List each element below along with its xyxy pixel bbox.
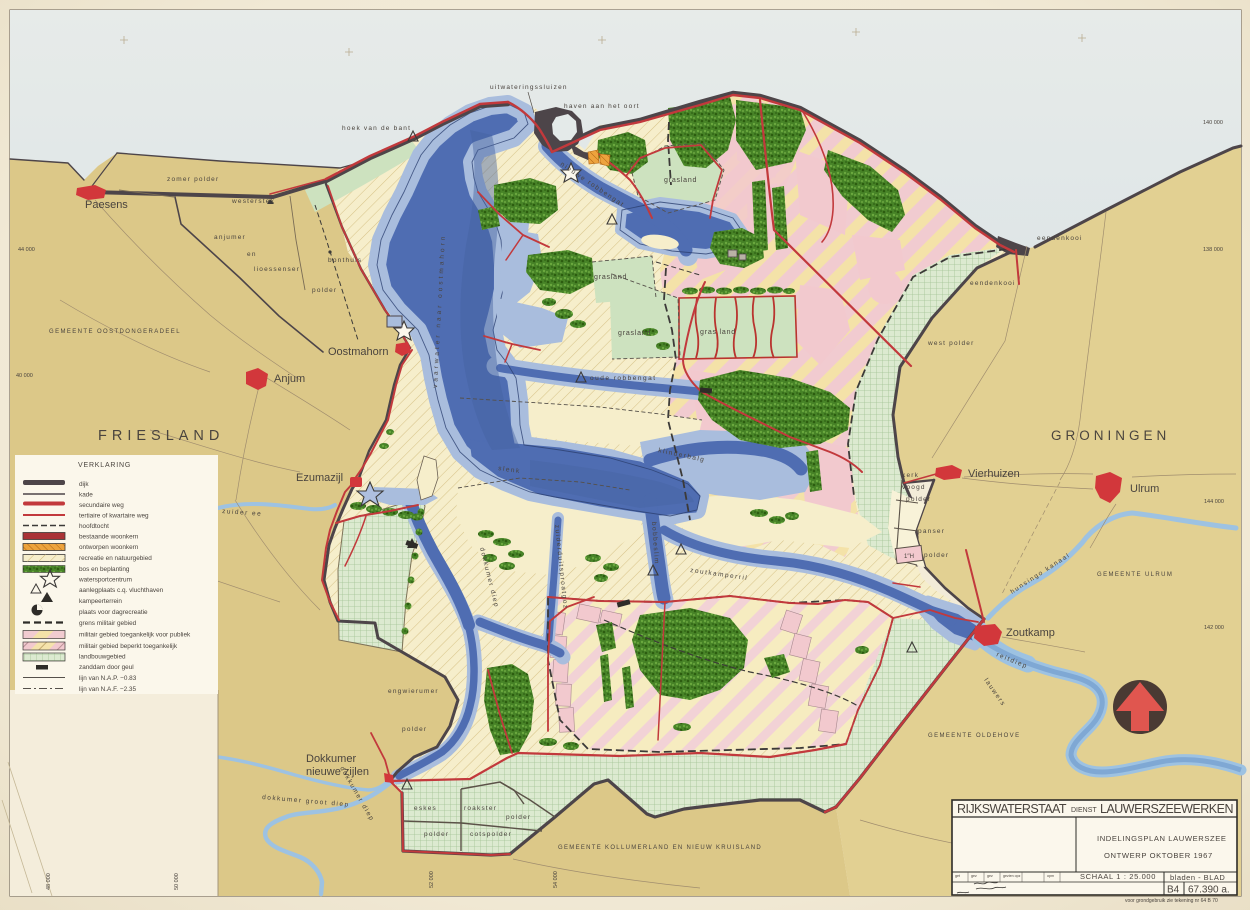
svg-text:panser: panser [918, 528, 945, 535]
svg-text:1′′H: 1′′H [904, 554, 914, 560]
svg-text:kade: kade [79, 492, 93, 499]
svg-text:Oostmahorn: Oostmahorn [328, 346, 389, 358]
svg-text:VERKLARING: VERKLARING [78, 462, 131, 469]
svg-text:uitwateringssluizen: uitwateringssluizen [490, 84, 568, 91]
svg-text:ontworpen woonkern: ontworpen woonkern [79, 544, 139, 551]
svg-text:144 000: 144 000 [1204, 499, 1224, 505]
svg-text:voogd: voogd [902, 484, 926, 491]
svg-text:dijk: dijk [79, 481, 89, 488]
svg-text:grens militair gebied: grens militair gebied [79, 620, 137, 627]
svg-text:40 000: 40 000 [16, 373, 33, 379]
svg-text:west polder: west polder [927, 340, 974, 347]
svg-text:militair gebied toegankelijk v: militair gebied toegankelijk voor publie… [79, 632, 191, 639]
svg-text:lijn van N.A.F. −2.35: lijn van N.A.F. −2.35 [79, 686, 136, 693]
svg-text:opm: opm [1047, 874, 1054, 878]
svg-text:polder: polder [906, 496, 931, 503]
svg-text:48 000: 48 000 [46, 873, 52, 890]
svg-text:bos en beplanting: bos en beplanting [79, 566, 130, 573]
svg-text:secundaire weg: secundaire weg [79, 502, 124, 509]
svg-text:polder: polder [312, 287, 337, 294]
svg-text:GRONINGEN: GRONINGEN [1051, 428, 1170, 443]
svg-text:tertiaire of kwartaire weg: tertiaire of kwartaire weg [79, 513, 149, 520]
svg-text:gez: gez [987, 874, 993, 878]
svg-text:GEMEENTE KOLLUMERLAND EN NI: GEMEENTE KOLLUMERLAND EN NIEUW KRUISLAND [558, 845, 762, 851]
svg-text:oude robbengat: oude robbengat [590, 375, 657, 382]
svg-text:engwierumer: engwierumer [388, 688, 439, 695]
svg-text:landbouwgebied: landbouwgebied [79, 654, 126, 661]
svg-text:roakster: roakster [464, 805, 497, 812]
svg-text:bonthuis: bonthuis [328, 257, 362, 264]
svg-text:GEMEENTE ULRUM: GEMEENTE ULRUM [1097, 572, 1173, 578]
svg-text:zanddam door geul: zanddam door geul [79, 664, 134, 671]
svg-text:ONTWERP OKTOBER 1967: ONTWERP OKTOBER 1967 [1104, 851, 1213, 860]
svg-text:aanlegplaats c.q. vluchthaven: aanlegplaats c.q. vluchthaven [79, 587, 164, 594]
svg-text:B4: B4 [1167, 885, 1180, 896]
svg-text:138 000: 138 000 [1203, 247, 1223, 253]
svg-text:get: get [955, 874, 960, 878]
svg-text:recreatie en natuurgebied: recreatie en natuurgebied [79, 555, 152, 562]
svg-text:grasland: grasland [594, 274, 627, 281]
svg-text:LAUWERSZEEWERKEN: LAUWERSZEEWERKEN [1100, 802, 1234, 816]
svg-text:44 000: 44 000 [18, 247, 35, 253]
svg-text:kampeerterrein: kampeerterrein [79, 598, 122, 605]
svg-text:lijn van N.A.P. −0.83: lijn van N.A.P. −0.83 [79, 675, 137, 682]
svg-text:eendenkooi: eendenkooi [970, 280, 1016, 287]
svg-text:Ezumazijl: Ezumazijl [296, 472, 343, 484]
svg-text:Zoutkamp: Zoutkamp [1006, 627, 1055, 639]
svg-text:SCHAAL 1 : 25.000: SCHAAL 1 : 25.000 [1080, 872, 1156, 881]
svg-text:gez: gez [971, 874, 977, 878]
svg-text:hoofdtocht: hoofdtocht [79, 523, 109, 530]
svg-text:polder: polder [424, 831, 449, 838]
svg-text:en: en [247, 251, 257, 258]
svg-text:DIENST: DIENST [1071, 807, 1097, 814]
svg-text:polder: polder [924, 552, 949, 559]
svg-text:voor grondgebruik zie tekening: voor grondgebruik zie tekening nr 64 B 7… [1125, 898, 1218, 904]
svg-text:hoek van de bant: hoek van de bant [342, 125, 411, 132]
svg-text:grasland: grasland [618, 330, 651, 337]
svg-text:grasland: grasland [664, 177, 697, 184]
svg-text:nieuwe zijlen: nieuwe zijlen [306, 766, 369, 778]
svg-text:bladen - BLAD: bladen - BLAD [1170, 873, 1225, 882]
svg-text:polder: polder [402, 726, 427, 733]
svg-text:RIJKSWATERSTAAT: RIJKSWATERSTAAT [957, 802, 1067, 816]
svg-text:haven aan het oort: haven aan het oort [564, 103, 640, 110]
svg-text:lioessenser: lioessenser [254, 266, 300, 273]
svg-text:142 000: 142 000 [1204, 625, 1224, 631]
svg-text:watersportcentrum: watersportcentrum [78, 577, 132, 584]
svg-text:gras land: gras land [700, 329, 736, 336]
svg-text:GEMEENTE OLDEHOVE: GEMEENTE OLDEHOVE [928, 733, 1020, 739]
svg-text:polder: polder [506, 814, 531, 821]
svg-text:Vierhuizen: Vierhuizen [968, 468, 1020, 480]
svg-text:eskes: eskes [414, 805, 437, 812]
svg-text:140 000: 140 000 [1203, 120, 1223, 126]
svg-text:cotspolder: cotspolder [470, 831, 512, 838]
svg-text:gezien opz: gezien opz [1003, 874, 1021, 878]
svg-text:bestaande woonkern: bestaande woonkern [79, 534, 139, 541]
svg-text:eendenkooi: eendenkooi [1037, 235, 1083, 242]
svg-text:54 000: 54 000 [553, 871, 559, 888]
svg-text:anjumer: anjumer [214, 234, 246, 241]
svg-text:militair gebied beperkt toegan: militair gebied beperkt toegankelijk [79, 643, 178, 650]
svg-text:Anjum: Anjum [274, 373, 305, 385]
svg-text:Ulrum: Ulrum [1130, 483, 1159, 495]
svg-text:50 000: 50 000 [174, 873, 180, 890]
svg-text:67.390 a.: 67.390 a. [1188, 885, 1230, 896]
svg-text:FRIESLAND: FRIESLAND [98, 428, 224, 444]
svg-text:plaats voor dagrecreatie: plaats voor dagrecreatie [79, 609, 148, 616]
svg-text:Dokkumer: Dokkumer [306, 753, 356, 765]
svg-text:GEMEENTE OOSTDONGERADEEL: GEMEENTE OOSTDONGERADEEL [49, 329, 181, 335]
svg-text:Paesens: Paesens [85, 199, 128, 211]
svg-text:INDELINGSPLAN LAUWERSZEE: INDELINGSPLAN LAUWERSZEE [1097, 834, 1227, 843]
svg-text:zomer polder: zomer polder [167, 176, 219, 183]
svg-text:kerk: kerk [902, 472, 919, 479]
svg-text:52 000: 52 000 [429, 871, 435, 888]
